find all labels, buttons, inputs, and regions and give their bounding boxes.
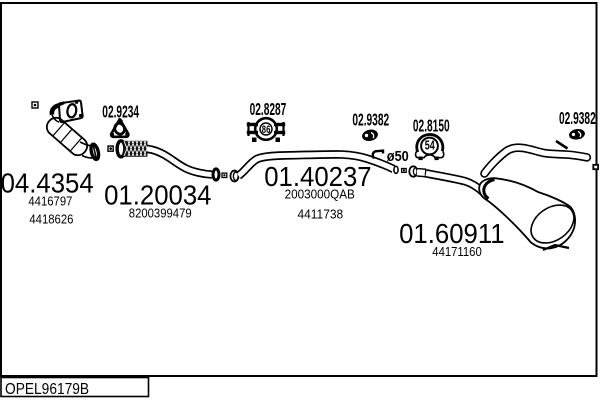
- svg-text:ø50: ø50: [387, 148, 409, 164]
- svg-text:86: 86: [262, 124, 271, 137]
- svg-text:02.9382: 02.9382: [352, 111, 389, 131]
- svg-text:02.9382: 02.9382: [559, 109, 596, 129]
- svg-text:OPEL96179B: OPEL96179B: [5, 380, 89, 398]
- svg-text:4411738: 4411738: [298, 207, 344, 222]
- svg-text:8200399479: 8200399479: [129, 206, 192, 221]
- svg-text:54: 54: [425, 139, 436, 153]
- svg-text:4418626: 4418626: [29, 212, 73, 227]
- svg-text:44171160: 44171160: [432, 244, 482, 259]
- svg-text:02.8287: 02.8287: [250, 100, 287, 120]
- svg-text:4416797: 4416797: [28, 194, 72, 209]
- svg-text:02.8150: 02.8150: [413, 117, 450, 137]
- svg-text:02.9234: 02.9234: [102, 103, 139, 123]
- svg-text:2003000QAB: 2003000QAB: [285, 187, 355, 202]
